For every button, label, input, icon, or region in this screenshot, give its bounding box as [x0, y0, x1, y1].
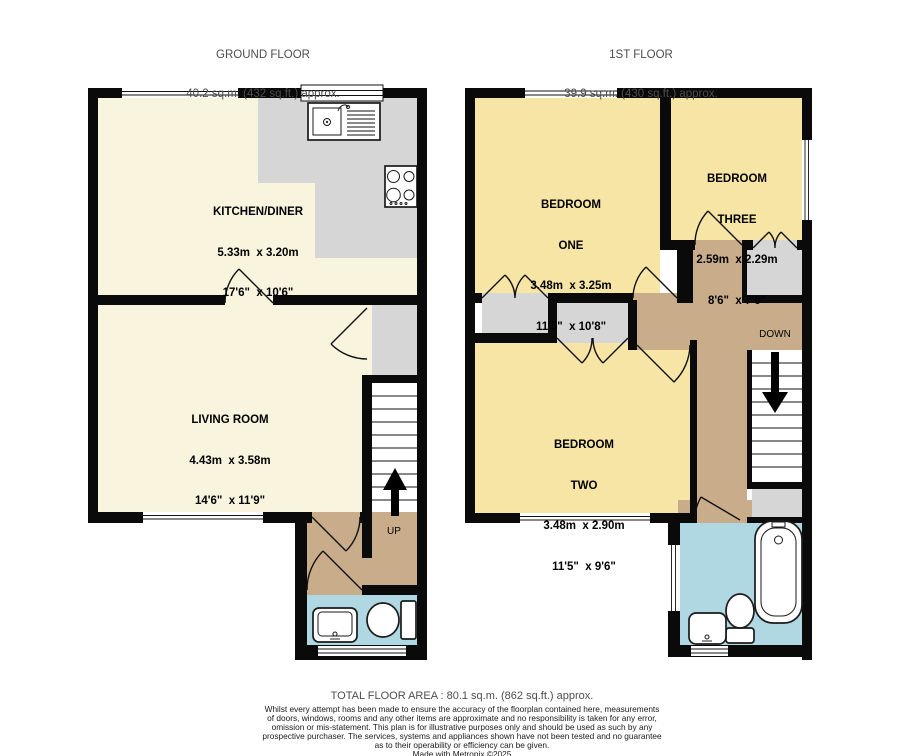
ground-toilet-icon	[367, 601, 416, 639]
floorplan-drawing	[0, 0, 900, 756]
first-window-bathroom-bottom	[691, 646, 728, 656]
landing-corridor	[697, 350, 747, 523]
bedroom-two-label: BEDROOM TWO 3.48m x 2.90m 11'5" x 9'6"	[543, 412, 624, 588]
bedroom-three-label: BEDROOM THREE 2.59m x 2.29m 8'6" x 7'6"	[696, 146, 777, 322]
kitchen-diner-label: KITCHEN/DINER 5.33m x 3.20m 17'6" x 10'6…	[213, 179, 303, 314]
hall-door-gap	[312, 512, 360, 523]
first-window-bedroom-three	[802, 140, 812, 220]
first-floor-area: 39.9 sq.m. (430 sq.ft.) approx.	[564, 88, 717, 101]
ground-floor-title: GROUND FLOOR	[186, 49, 339, 62]
first-basin-icon	[689, 613, 726, 644]
first-floor-title: 1ST FLOOR	[564, 49, 717, 62]
cupboard-understairs	[752, 489, 802, 517]
bathroom-door-gap	[307, 585, 362, 595]
ground-basin-icon	[313, 608, 357, 642]
bathtub-icon	[755, 521, 802, 623]
floorplan: GROUND FLOOR 40.2 sq.m. (432 sq.ft.) app…	[0, 0, 900, 756]
bedroom-one-label: BEDROOM ONE 3.48m x 3.25m 11'5" x 10'8"	[530, 172, 611, 348]
ground-floor-area: 40.2 sq.m. (432 sq.ft.) approx.	[186, 88, 339, 101]
footer: TOTAL FLOOR AREA : 80.1 sq.m. (862 sq.ft…	[152, 690, 772, 756]
metropix-credit: Made with Metropix ©2025	[152, 750, 772, 756]
closet-door-gap	[362, 305, 372, 375]
living-room-label: LIVING ROOM 4.43m x 3.58m 14'6" x 11'9"	[189, 387, 270, 522]
ground-window-bathroom	[318, 646, 406, 656]
ground-closet	[372, 305, 417, 375]
ground-floor-header: GROUND FLOOR 40.2 sq.m. (432 sq.ft.) app…	[186, 23, 339, 114]
up-label: UP	[387, 526, 401, 537]
ground-floor-plan	[88, 85, 427, 660]
first-window-bathroom-side	[668, 545, 680, 611]
hob-icon	[385, 166, 417, 207]
first-floor-header: 1ST FLOOR 39.9 sq.m. (430 sq.ft.) approx…	[564, 23, 717, 114]
down-label: DOWN	[759, 329, 791, 340]
total-floor-area: TOTAL FLOOR AREA : 80.1 sq.m. (862 sq.ft…	[152, 690, 772, 702]
first-toilet-icon	[726, 594, 754, 643]
